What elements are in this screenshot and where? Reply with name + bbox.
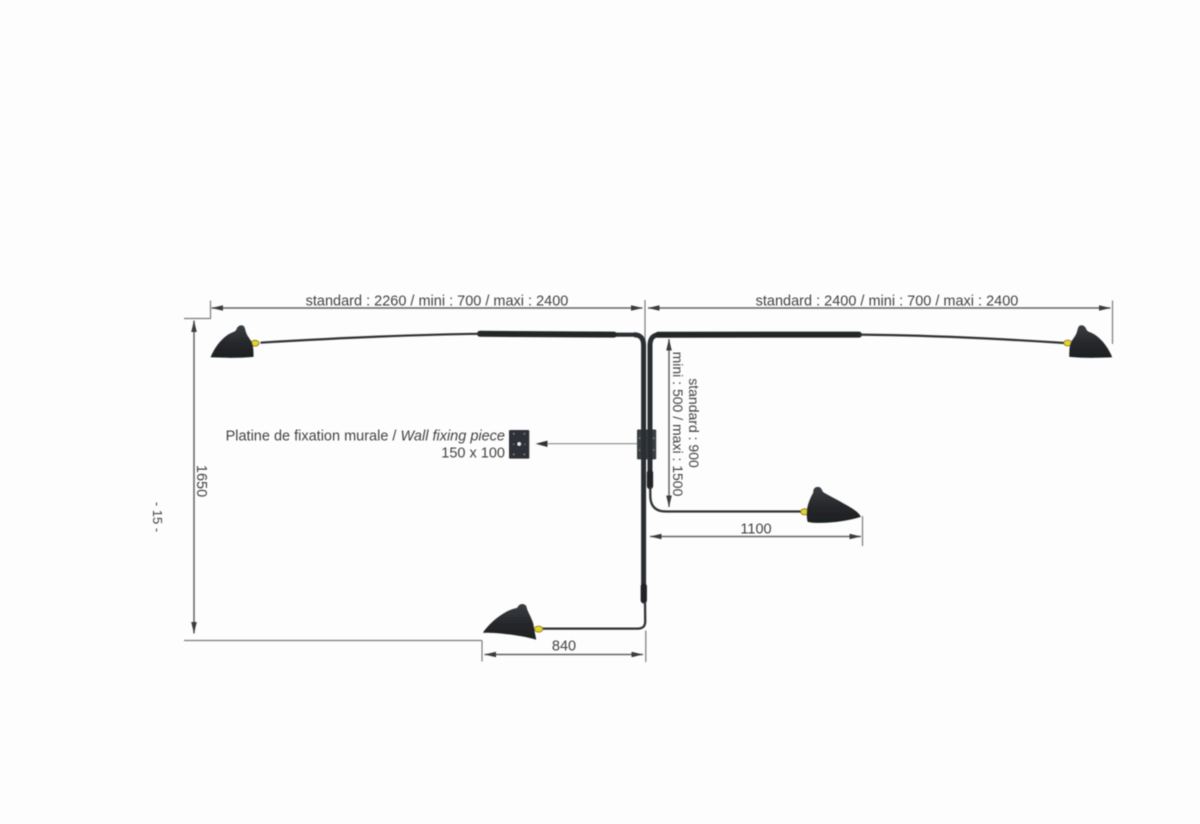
- svg-text:standard : 2260 / mini : 700 /: standard : 2260 / mini : 700 / maxi : 24…: [306, 294, 569, 310]
- svg-text:- 15 -: - 15 -: [150, 502, 165, 532]
- svg-text:standard : 900: standard : 900: [686, 378, 702, 468]
- svg-text:150 x 100: 150 x 100: [441, 446, 505, 462]
- svg-text:1100: 1100: [740, 522, 771, 538]
- svg-text:840: 840: [552, 639, 576, 655]
- svg-text:1650: 1650: [193, 465, 209, 497]
- svg-text:Platine de fixation murale / W: Platine de fixation murale / Wall fixing…: [226, 429, 505, 445]
- svg-text:mini : 500 / maxi : 1500: mini : 500 / maxi : 1500: [670, 352, 686, 497]
- svg-text:standard : 2400 / mini : 700 /: standard : 2400 / mini : 700 / maxi : 24…: [756, 294, 1019, 310]
